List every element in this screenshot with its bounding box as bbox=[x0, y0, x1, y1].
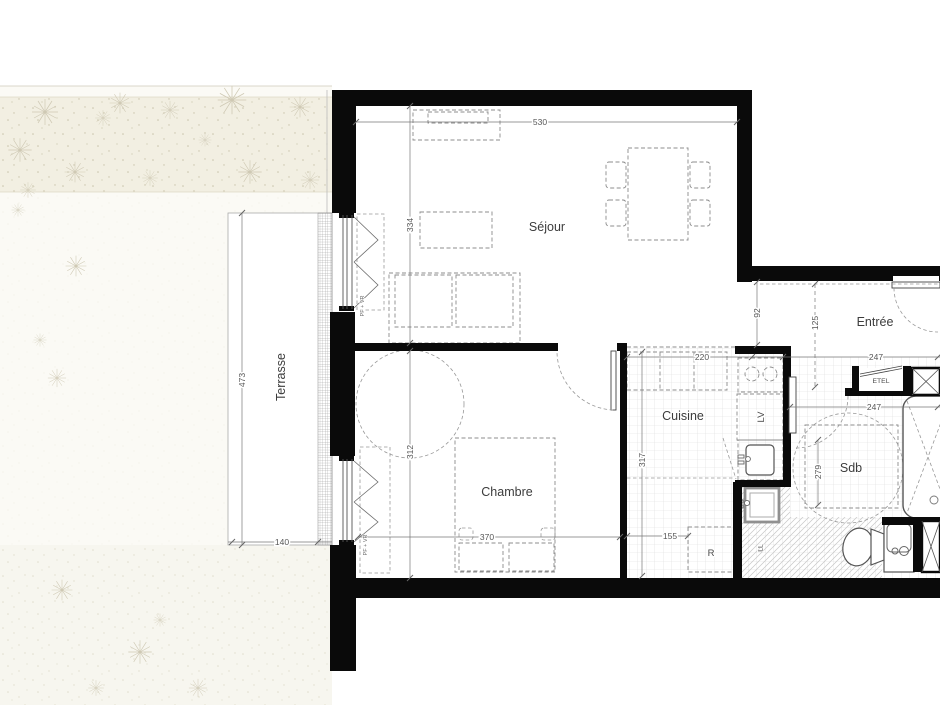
room-label-entree: Entrée bbox=[857, 315, 894, 329]
room-label-cuisine: Cuisine bbox=[662, 409, 704, 423]
wall-segment bbox=[620, 343, 627, 579]
appliance-label-washer: LL bbox=[758, 544, 765, 552]
window-type-label: PF + VR bbox=[363, 535, 369, 556]
room-label-terrasse: Terrasse bbox=[274, 353, 288, 401]
wall-segment bbox=[330, 312, 355, 456]
wall-segment bbox=[332, 90, 752, 106]
window-type-label: PF + VR bbox=[360, 296, 366, 317]
window-sejour-icon bbox=[339, 213, 378, 311]
dim-cuisine-depth: 317 bbox=[637, 453, 647, 467]
floor-plan-screenshot: Séjour Chambre Cuisine Entrée Sdb Terras… bbox=[0, 0, 940, 705]
closet-label-etel: ETEL bbox=[873, 378, 890, 385]
appliance-label-dishwasher: LV bbox=[756, 411, 767, 423]
window-chambre-icon bbox=[339, 456, 378, 545]
outdoor-lower-speckle bbox=[0, 545, 332, 705]
dim-cuisine-width: 220 bbox=[695, 352, 709, 362]
dim-entree-width: 247 bbox=[869, 352, 883, 362]
dining-chair bbox=[606, 162, 626, 188]
dim-fridge-nook: 155 bbox=[663, 531, 677, 541]
toilet-tank-icon bbox=[871, 529, 884, 565]
chambre-door-leaf bbox=[611, 351, 616, 410]
wall-segment bbox=[737, 90, 752, 282]
dim-terrasse-width: 140 bbox=[275, 537, 289, 547]
bed-head-right bbox=[509, 543, 554, 571]
sideboard bbox=[413, 110, 500, 140]
dining-table bbox=[628, 148, 688, 240]
dim-passage: 92 bbox=[752, 308, 762, 318]
sofa-cushion-right bbox=[456, 275, 513, 327]
washbasin-unit-icon bbox=[884, 520, 914, 572]
bed-head-left bbox=[459, 543, 503, 571]
pillow bbox=[541, 528, 555, 540]
dim-sdb-width: 247 bbox=[867, 402, 881, 412]
dim-entree: 125 bbox=[810, 316, 820, 330]
sideboard-inner bbox=[428, 112, 488, 123]
wall-segment bbox=[735, 480, 783, 487]
wall-segment bbox=[332, 90, 356, 213]
dim-chambre-depth: 312 bbox=[405, 445, 415, 459]
entry-door-swing bbox=[894, 288, 938, 332]
room-label-sejour: Séjour bbox=[529, 220, 565, 234]
entry-door-leaf bbox=[892, 282, 940, 288]
dim-terrasse-depth: 473 bbox=[237, 373, 247, 387]
dim-chambre-width: 370 bbox=[480, 532, 494, 542]
sofa-cushion-left bbox=[395, 275, 452, 327]
wall-segment bbox=[355, 578, 940, 598]
shower-tray-icon bbox=[903, 396, 940, 518]
wall-segment bbox=[733, 482, 742, 579]
entry-threshold bbox=[893, 276, 939, 281]
dining-chair bbox=[690, 162, 710, 188]
dining-chair bbox=[606, 200, 626, 226]
wall-segment bbox=[330, 545, 356, 671]
coffee-table bbox=[420, 212, 492, 248]
floor-plan-drawing: Séjour Chambre Cuisine Entrée Sdb Terras… bbox=[0, 0, 940, 705]
terrace-drain-band bbox=[318, 213, 332, 545]
sofa bbox=[389, 273, 520, 343]
vegetation-speckle bbox=[0, 97, 332, 192]
dim-sdb-depth: 279 bbox=[813, 465, 823, 479]
room-label-chambre: Chambre bbox=[481, 485, 532, 499]
chambre-door-swing bbox=[557, 351, 613, 410]
bed bbox=[455, 438, 555, 572]
wall-segment bbox=[735, 346, 788, 354]
pillow bbox=[459, 528, 473, 540]
appliance-label-fridge: R bbox=[708, 548, 715, 559]
dim-sejour-width: 530 bbox=[533, 117, 547, 127]
room-label-sdb: Sdb bbox=[840, 461, 862, 475]
wall-segment bbox=[355, 343, 558, 351]
dining-chair bbox=[690, 200, 710, 226]
dim-sejour-depth: 334 bbox=[405, 218, 415, 232]
